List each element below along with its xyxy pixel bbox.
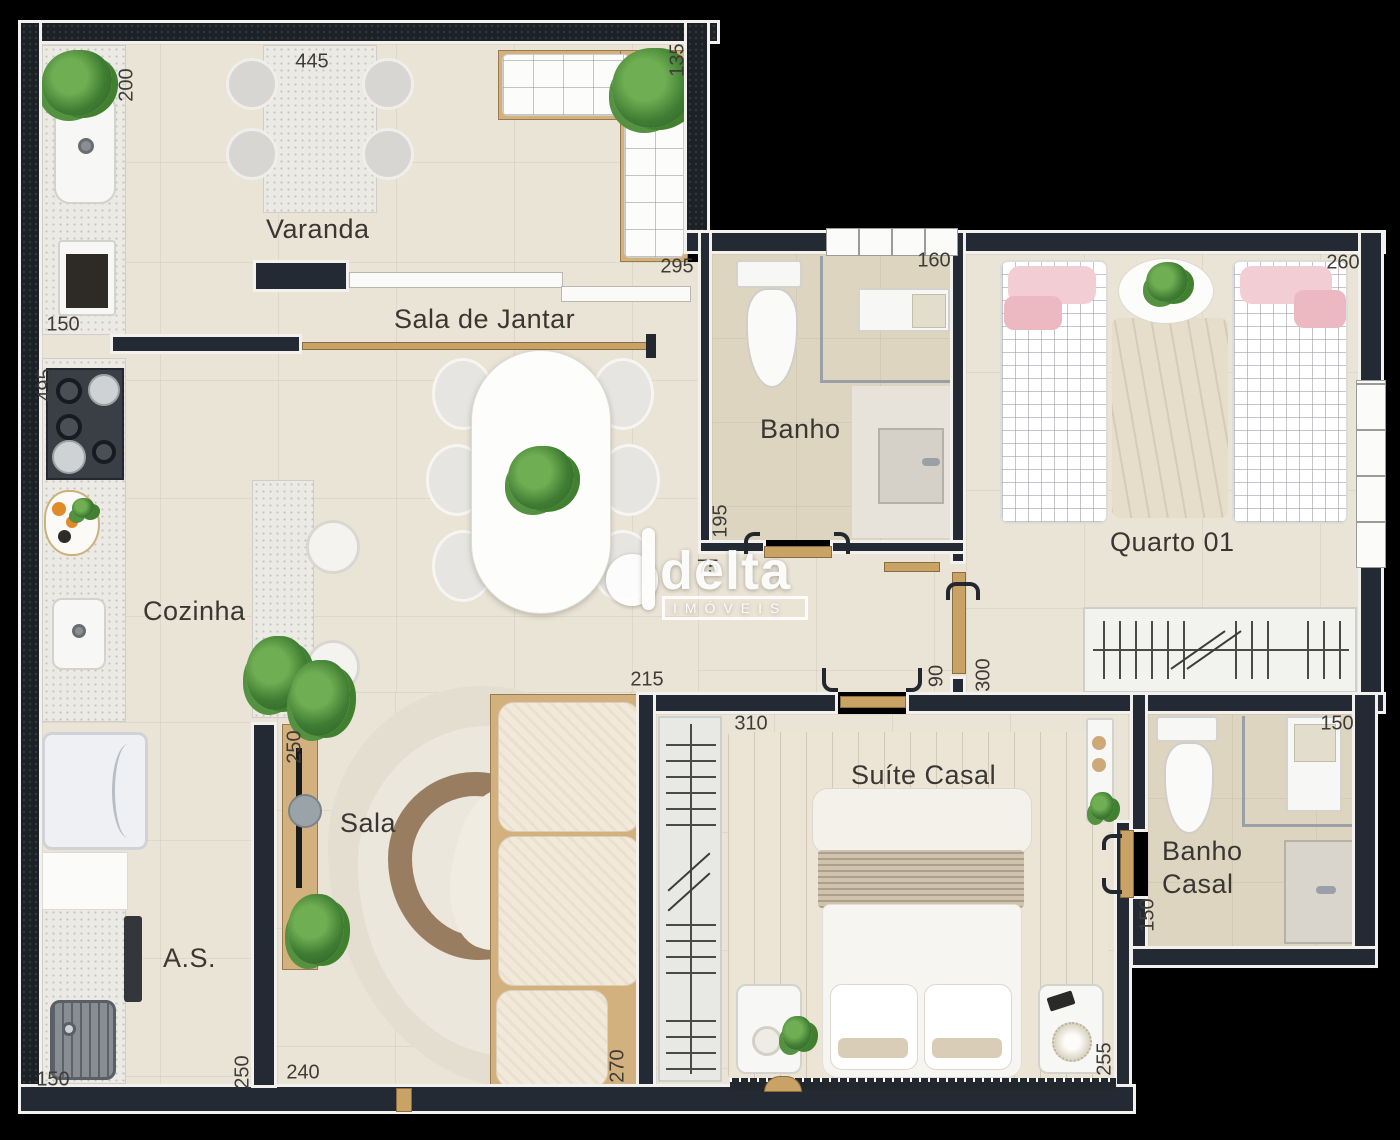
shower-glass xyxy=(1242,824,1354,827)
varanda-sliding-door-icon xyxy=(302,342,648,350)
shower-glass xyxy=(820,380,950,383)
varanda-chair-icon xyxy=(226,128,278,180)
bed-bolster xyxy=(812,788,1032,854)
room-label-sala: Sala xyxy=(340,808,396,839)
room-label-banho-casal: Banho Casal xyxy=(1162,835,1243,901)
dim-label: 160 xyxy=(917,250,950,273)
varanda-chair-icon xyxy=(362,128,414,180)
pillow-band xyxy=(932,1038,1002,1058)
sofa-cushion-icon xyxy=(498,836,640,986)
kitchen-faucet-icon xyxy=(72,624,86,638)
toilet-tank-icon xyxy=(1156,716,1218,742)
wall xyxy=(636,692,656,1092)
door-swing-icon xyxy=(1102,878,1122,894)
room-label-as: A.S. xyxy=(163,943,216,974)
dim-label: 260 xyxy=(1326,252,1359,275)
food-icon xyxy=(58,530,71,543)
dim-label: 215 xyxy=(630,669,663,692)
washer-door-arc xyxy=(112,744,145,838)
toilet-tank-icon xyxy=(736,260,802,288)
watermark-logo-icon xyxy=(642,528,655,610)
room-label-quarto-01: Quarto 01 xyxy=(1110,527,1235,558)
dim-label: 445 xyxy=(295,51,328,74)
wall xyxy=(253,260,349,292)
door-swing-icon xyxy=(906,668,922,692)
island-stool-icon xyxy=(306,520,360,574)
shower-handle-icon xyxy=(922,458,940,466)
varanda-chair-icon xyxy=(362,58,414,110)
wardrobe-hangers xyxy=(1235,621,1279,679)
dim-label: 495 xyxy=(35,368,58,401)
varanda-chair-icon xyxy=(226,58,278,110)
shower-glass xyxy=(820,256,823,382)
dim-label: 135 xyxy=(667,43,690,76)
suite-wardrobe-icon xyxy=(658,716,722,1082)
wall xyxy=(1352,692,1378,964)
wall xyxy=(18,20,720,44)
wall xyxy=(1130,692,1148,832)
quarto-rug-icon xyxy=(1112,318,1228,518)
dresser-knob-icon xyxy=(1092,758,1106,772)
window-sill xyxy=(561,286,691,302)
dim-label: 240 xyxy=(286,1062,319,1085)
wardrobe-hangers xyxy=(666,1014,716,1070)
wardrobe-hangers xyxy=(666,730,716,826)
wall xyxy=(251,722,277,1088)
dim-label: 255 xyxy=(1094,1042,1117,1075)
food-icon xyxy=(66,516,78,528)
sofa-cushion-icon xyxy=(498,702,640,832)
dim-label: 200 xyxy=(116,68,139,101)
bed-knit-throw xyxy=(818,850,1024,908)
shower-handle-icon xyxy=(1316,886,1336,894)
room-label-varanda: Varanda xyxy=(266,214,370,245)
outdoor-sofa-icon xyxy=(502,54,630,116)
shower-glass xyxy=(1242,716,1245,826)
banho-vanity-sink xyxy=(912,294,946,328)
window-sill xyxy=(349,272,563,288)
as-cabinet xyxy=(42,852,128,910)
room-label-banho: Banho xyxy=(760,414,841,445)
burner-icon xyxy=(92,440,116,464)
quarto-wardrobe-icon xyxy=(1083,607,1357,693)
dim-label: 270 xyxy=(607,1049,630,1082)
dim-label: 150 xyxy=(1137,898,1160,931)
pot-icon xyxy=(52,440,86,474)
door-swing-icon xyxy=(946,582,980,600)
wardrobe-slash xyxy=(668,873,711,912)
varanda-sink-drain-icon xyxy=(78,138,94,154)
tank-faucet-icon xyxy=(62,1022,76,1036)
coffee-machine-screen xyxy=(66,254,108,308)
watermark-tagline: IMÓVEIS xyxy=(662,596,808,620)
dim-label: 300 xyxy=(973,658,996,691)
vase-icon xyxy=(288,794,322,828)
watermark-brand: delta xyxy=(660,540,791,602)
wall xyxy=(648,692,838,714)
wardrobe-hangers xyxy=(1103,621,1195,679)
service-door-icon xyxy=(396,1088,412,1112)
shower-tray-icon xyxy=(878,428,944,504)
wardrobe-slash xyxy=(668,853,711,892)
room-label-sala-de-jantar: Sala de Jantar xyxy=(394,304,575,335)
lamp-icon xyxy=(752,1026,782,1056)
door-bracket xyxy=(646,334,656,358)
burner-icon xyxy=(56,414,82,440)
sofa-cushion-icon xyxy=(496,990,608,1088)
pink-throw-icon xyxy=(1004,296,1062,330)
dim-label: 250 xyxy=(284,730,307,763)
dim-label: 150 xyxy=(36,1069,69,1092)
dim-label: 250 xyxy=(232,1055,255,1088)
flower-icon xyxy=(1052,1022,1092,1062)
pillow-band xyxy=(838,1038,908,1058)
double-bed-icon xyxy=(812,788,1030,1076)
food-icon xyxy=(52,502,66,516)
wardrobe-hangers xyxy=(1307,621,1351,679)
wall xyxy=(830,540,966,554)
suite-door-icon xyxy=(840,696,906,708)
quarto-door-sill xyxy=(884,562,940,572)
wall xyxy=(18,20,42,1114)
room-label-cozinha: Cozinha xyxy=(143,596,246,627)
wall xyxy=(950,230,966,564)
ironing-board-icon xyxy=(124,916,142,1002)
door-swing-icon xyxy=(822,668,838,692)
outdoor-sofa-icon xyxy=(624,118,684,258)
watermark: delta IMÓVEIS xyxy=(602,528,812,632)
dim-label: 295 xyxy=(660,256,693,279)
door-swing-icon xyxy=(1102,834,1122,850)
quarto-window-icon xyxy=(1356,380,1386,568)
dim-label: 150 xyxy=(1320,713,1353,736)
door-swing-icon xyxy=(834,532,850,554)
room-label-suite-casal: Suíte Casal xyxy=(851,760,996,791)
dim-label: 310 xyxy=(734,713,767,736)
dim-label: 90 xyxy=(926,665,949,687)
banho-casal-door-icon xyxy=(1120,830,1134,898)
burner-icon xyxy=(56,378,82,404)
wardrobe-hangers xyxy=(666,914,716,974)
wall xyxy=(110,334,302,354)
wall xyxy=(1130,946,1378,968)
dresser-knob-icon xyxy=(1092,736,1106,750)
dim-label: 150 xyxy=(46,314,79,337)
floor-plan: Varanda Sala de Jantar Banho Quarto 01 C… xyxy=(0,0,1400,1140)
pot-icon xyxy=(88,374,120,406)
pink-throw-icon xyxy=(1294,290,1346,328)
wall xyxy=(684,230,1386,254)
